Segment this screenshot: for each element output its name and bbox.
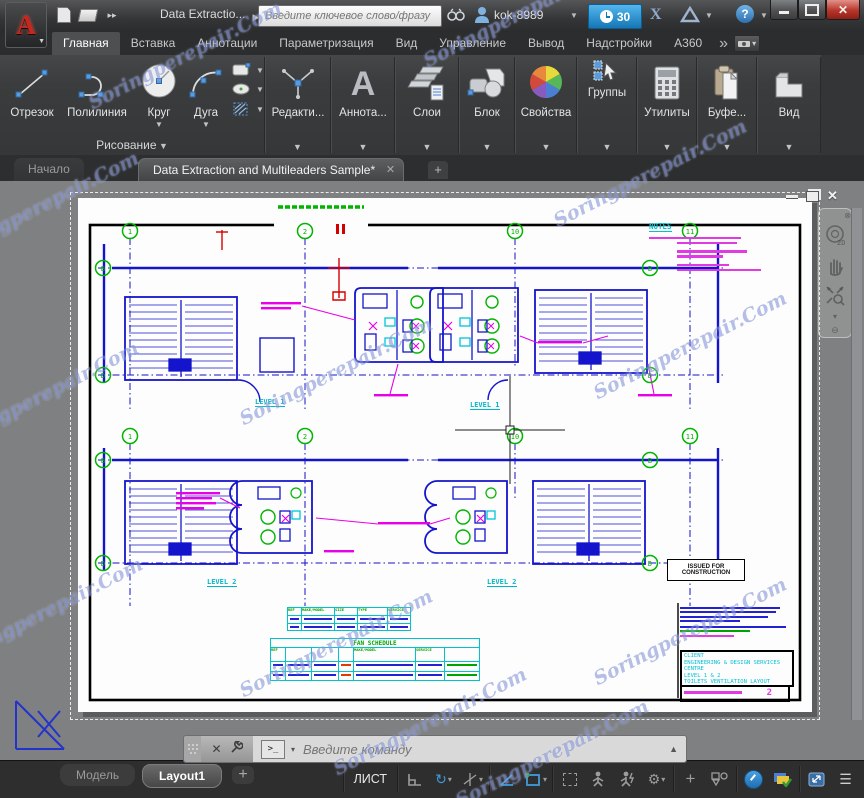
navigation-bar: ⊗ 2D ▾ ⊖ — [818, 208, 852, 338]
svg-text:10: 10 — [511, 228, 519, 236]
arc-button[interactable]: Дуга ▼ — [184, 59, 228, 129]
panel-groups: Группы ▼ — [578, 55, 636, 155]
search-box — [258, 5, 442, 27]
model-tab[interactable]: Модель — [60, 764, 135, 786]
application-menu-button[interactable]: A ▼ — [5, 2, 47, 48]
open-folder-icon — [78, 9, 99, 22]
layers-icon — [407, 59, 447, 103]
ribbon-tab-parametric[interactable]: Параметризация — [268, 32, 384, 55]
clipboard-icon — [711, 59, 743, 103]
doc-restore-icon[interactable] — [806, 191, 819, 202]
ribbon-tab-addins[interactable]: Надстройки — [575, 32, 663, 55]
line-button[interactable]: Отрезок — [6, 59, 58, 119]
file-tab-start[interactable]: Начало — [14, 158, 84, 181]
selection-cycling-icon[interactable] — [555, 766, 584, 792]
command-input[interactable] — [301, 741, 663, 758]
circle-icon — [138, 59, 180, 103]
svg-text:2: 2 — [303, 228, 307, 236]
ribbon-tab-annotate[interactable]: Аннотации — [186, 32, 268, 55]
command-input-area: >_ ▾ ▲ — [253, 736, 686, 762]
panel-block: Блок ▼ — [460, 55, 514, 155]
draw-panel-expand-arrow[interactable]: ▼ — [159, 141, 168, 151]
utilities-panel-expand-arrow[interactable]: ▼ — [663, 142, 672, 152]
panel-view: Вид ▼ — [758, 55, 820, 155]
workspace-switch-icon[interactable]: + — [676, 766, 705, 792]
close-button[interactable]: ✕ — [826, 0, 860, 20]
annotation-button[interactable]: A Аннота... — [334, 59, 392, 119]
view-icon — [770, 59, 808, 103]
minimize-button[interactable] — [770, 0, 798, 20]
svg-text:1: 1 — [128, 228, 132, 236]
polar-tracking-icon[interactable]: ↻▾ — [429, 766, 458, 792]
level1-label-left: LEVEL 1 — [255, 398, 285, 407]
level2-label-left: LEVEL 2 — [207, 578, 237, 587]
navbar-close-icon[interactable]: ⊗ — [819, 209, 854, 220]
media-button[interactable]: ▾ — [734, 35, 760, 52]
circle-dropdown-arrow[interactable]: ▼ — [155, 120, 163, 129]
file-tab-close-icon[interactable]: ✕ — [386, 159, 395, 182]
polyline-icon — [74, 59, 120, 103]
window-title: Data Extractio... — [160, 7, 245, 21]
rect-dropdown-arrow[interactable]: ▼ — [256, 66, 264, 75]
new-drawing-tab-button[interactable]: + — [428, 161, 448, 179]
user-icon — [474, 6, 490, 24]
svg-text:B: B — [101, 265, 105, 273]
new-file-button[interactable] — [52, 5, 76, 25]
navbar-more-arrow[interactable]: ▾ — [819, 312, 851, 321]
drawing-canvas[interactable]: 1 2 10 11 B D B D 1 2 10 — [0, 181, 864, 760]
command-prompt-icon[interactable]: >_ — [261, 740, 285, 759]
maximize-button[interactable] — [798, 0, 826, 20]
hatch-dropdown-arrow[interactable]: ▼ — [256, 105, 264, 114]
ucs-icon — [8, 697, 68, 760]
customize-wrench-icon[interactable] — [230, 741, 243, 757]
zoom-extents-icon[interactable] — [819, 284, 851, 306]
annotation-visibility-icon[interactable] — [584, 766, 613, 792]
open-file-button[interactable] — [76, 5, 100, 25]
modify-panel-expand-arrow[interactable]: ▼ — [293, 142, 302, 152]
rectangle-tool-button[interactable]: ▼ — [232, 63, 264, 77]
layers-button[interactable]: Слои — [400, 59, 454, 119]
notes-block: NOTES — [649, 216, 789, 271]
svg-text:D: D — [648, 560, 652, 568]
clean-screen-palette-icon[interactable] — [768, 766, 797, 792]
grid-display-icon[interactable] — [400, 766, 429, 792]
sheet-number: 2 — [767, 688, 772, 698]
pan-hand-icon[interactable] — [819, 254, 851, 276]
user-menu-arrow[interactable]: ▼ — [570, 11, 578, 20]
file-tab-bar: Начало Data Extraction and Multileaders … — [0, 155, 864, 181]
polyline-button[interactable]: Полилиния — [60, 59, 134, 119]
fullscreen-icon[interactable] — [802, 766, 831, 792]
annotation-panel-expand-arrow[interactable]: ▼ — [359, 142, 368, 152]
tab-overflow-arrows[interactable]: » — [719, 35, 728, 53]
svg-text:2D: 2D — [837, 239, 845, 246]
annotation-monitor-icon[interactable] — [705, 766, 734, 792]
panel-layers: Слои ▼ — [396, 55, 458, 155]
trial-days-badge[interactable]: 30 — [588, 4, 642, 29]
block-button[interactable]: Блок — [462, 59, 512, 119]
customization-menu-icon[interactable]: ☰ — [831, 766, 860, 792]
view-button[interactable]: Вид — [762, 59, 816, 119]
svg-text:D: D — [101, 560, 105, 568]
a360-icon[interactable] — [680, 6, 700, 29]
circle-button[interactable]: Круг ▼ — [136, 59, 182, 129]
properties-button[interactable]: Свойства — [518, 59, 574, 119]
level1-label-right: LEVEL 1 — [470, 401, 500, 410]
ellipse-tool-button[interactable]: ▼ — [232, 82, 264, 96]
search-input[interactable] — [259, 6, 441, 26]
panel-properties: Свойства ▼ — [516, 55, 576, 155]
qat-overflow-button[interactable]: ▸▸ — [100, 5, 124, 25]
vertical-scrollbar[interactable] — [851, 208, 862, 720]
groups-icon — [592, 57, 622, 83]
steering-wheel-icon[interactable]: 2D — [819, 224, 851, 246]
modify-button[interactable]: Редакти... — [270, 59, 326, 119]
clipboard-button[interactable]: Буфе... — [700, 59, 754, 119]
clock-icon — [600, 10, 613, 23]
exchange-x-icon[interactable]: X — [650, 6, 662, 24]
block-panel-expand-arrow[interactable]: ▼ — [483, 142, 492, 152]
svg-text:B: B — [101, 457, 105, 465]
file-tab-active[interactable]: Data Extraction and Multileaders Sample*… — [138, 158, 404, 182]
groups-button[interactable]: Группы — [580, 57, 634, 99]
command-line-grip[interactable] — [184, 736, 201, 762]
ribbon: Отрезок Полилиния Круг ▼ Дуга ▼ ▼ ▼ ▼ Ри — [0, 55, 864, 156]
autoscale-icon[interactable] — [613, 766, 642, 792]
isodraft-angle-icon[interactable] — [492, 766, 521, 792]
help-button[interactable]: ? — [736, 5, 754, 23]
ortho-mode-icon[interactable]: ▾ — [458, 766, 487, 792]
doc-close-icon[interactable]: ✕ — [827, 188, 838, 204]
block-icon — [466, 59, 508, 103]
panel-annotation: A Аннота... ▼ — [332, 55, 394, 155]
signin-user-label[interactable]: kok-8989 — [494, 8, 543, 22]
object-snap-icon[interactable]: ▾ — [521, 766, 550, 792]
paper-space-button[interactable]: ЛИСТ — [346, 766, 395, 792]
command-expand-arrow[interactable]: ▲ — [669, 744, 678, 754]
calculator-icon — [652, 59, 682, 103]
svg-text:2: 2 — [303, 433, 307, 441]
view-panel-expand-arrow[interactable]: ▼ — [785, 142, 794, 152]
ribbon-tab-output[interactable]: Вывод — [517, 32, 575, 55]
revision-block — [680, 604, 788, 637]
panel-draw: Отрезок Полилиния Круг ▼ Дуга ▼ ▼ ▼ ▼ Ри — [0, 55, 264, 155]
fan-schedule-title: FAN SCHEDULE — [271, 640, 479, 647]
text-a-icon: A — [351, 59, 376, 103]
arc-icon — [185, 59, 227, 103]
hatch-tool-button[interactable]: ▼ — [232, 101, 264, 117]
title-bar: ▸▸ Data Extractio... ▶ kok-8989 ▼ 30 X ▼… — [0, 0, 864, 33]
ellipse-dropdown-arrow[interactable]: ▼ — [256, 85, 264, 94]
issued-for-construction-stamp: ISSUED FOR CONSTRUCTION — [667, 559, 745, 581]
command-close-icon[interactable]: ✕ — [211, 742, 221, 756]
panel-clipboard: Буфе... ▼ — [698, 55, 756, 155]
a360-menu-arrow[interactable]: ▼ — [705, 11, 713, 20]
panel-utilities: Утилиты ▼ — [638, 55, 696, 155]
ribbon-tab-insert[interactable]: Вставка — [120, 32, 187, 55]
ribbon-tab-a360[interactable]: A360 — [663, 32, 713, 55]
help-menu-arrow[interactable]: ▼ — [760, 11, 768, 20]
color-wheel-icon — [526, 59, 566, 103]
groups-panel-expand-arrow[interactable]: ▼ — [603, 142, 612, 152]
graphics-performance-icon[interactable] — [739, 766, 768, 792]
title-block: CLIENT ENGINEERING & DESIGN SERVICES CEN… — [680, 650, 794, 687]
svg-text:1: 1 — [128, 433, 132, 441]
notes-title: NOTES — [649, 222, 672, 232]
ribbon-tab-manage[interactable]: Управление — [428, 32, 517, 55]
svg-text:11: 11 — [686, 433, 694, 441]
clipboard-panel-expand-arrow[interactable]: ▼ — [723, 142, 732, 152]
add-layout-button[interactable]: + — [232, 766, 254, 784]
level2-label-right: LEVEL 2 — [487, 578, 517, 587]
properties-panel-expand-arrow[interactable]: ▼ — [542, 142, 551, 152]
layers-panel-expand-arrow[interactable]: ▼ — [423, 142, 432, 152]
paper-sheet: 1 2 10 11 B D B D 1 2 10 — [78, 198, 812, 712]
document-window-controls: ✕ — [786, 188, 838, 204]
command-history-arrow[interactable]: ▾ — [291, 745, 295, 754]
doc-minimize-icon[interactable] — [786, 195, 798, 198]
navbar-collapse-icon[interactable]: ⊖ — [819, 325, 851, 336]
fan-schedule-table: FAN SCHEDULE REF MAKE/MODEL SERVICE — [270, 638, 480, 681]
utilities-button[interactable]: Утилиты — [640, 59, 694, 119]
search-binoculars-icon[interactable] — [447, 8, 465, 22]
new-file-icon — [57, 7, 71, 23]
autocad-window: ▸▸ Data Extractio... ▶ kok-8989 ▼ 30 X ▼… — [0, 0, 864, 798]
line-icon — [11, 59, 53, 103]
status-bar: Модель Layout1 + ЛИСТ ↻▾ ▾ ▾ ⚙▾ — [0, 760, 864, 798]
arc-dropdown-arrow[interactable]: ▼ — [202, 120, 210, 129]
svg-text:D: D — [648, 372, 652, 380]
equipment-schedule-table: REF MAKE/MODEL SIZE TYPE SERVICE — [287, 607, 411, 631]
svg-text:B: B — [648, 457, 652, 465]
svg-text:D: D — [101, 372, 105, 380]
draw-panel-label[interactable]: Рисование — [96, 138, 156, 152]
command-line: ✕ >_ ▾ ▲ — [183, 735, 687, 763]
ribbon-tab-bar: Главная Вставка Аннотации Параметризация… — [0, 32, 864, 55]
ribbon-tab-home[interactable]: Главная — [52, 32, 120, 55]
annotation-scale-gear-icon[interactable]: ⚙▾ — [642, 766, 671, 792]
panel-modify: Редакти... ▼ — [266, 55, 329, 155]
ribbon-tab-view[interactable]: Вид — [385, 32, 429, 55]
sheet-number-block: 2 — [680, 685, 790, 702]
appmenu-dropdown-arrow[interactable]: ▼ — [38, 38, 45, 45]
autocad-logo: A — [16, 10, 36, 41]
modify-icon — [278, 59, 318, 103]
layout1-tab[interactable]: Layout1 — [142, 764, 222, 788]
